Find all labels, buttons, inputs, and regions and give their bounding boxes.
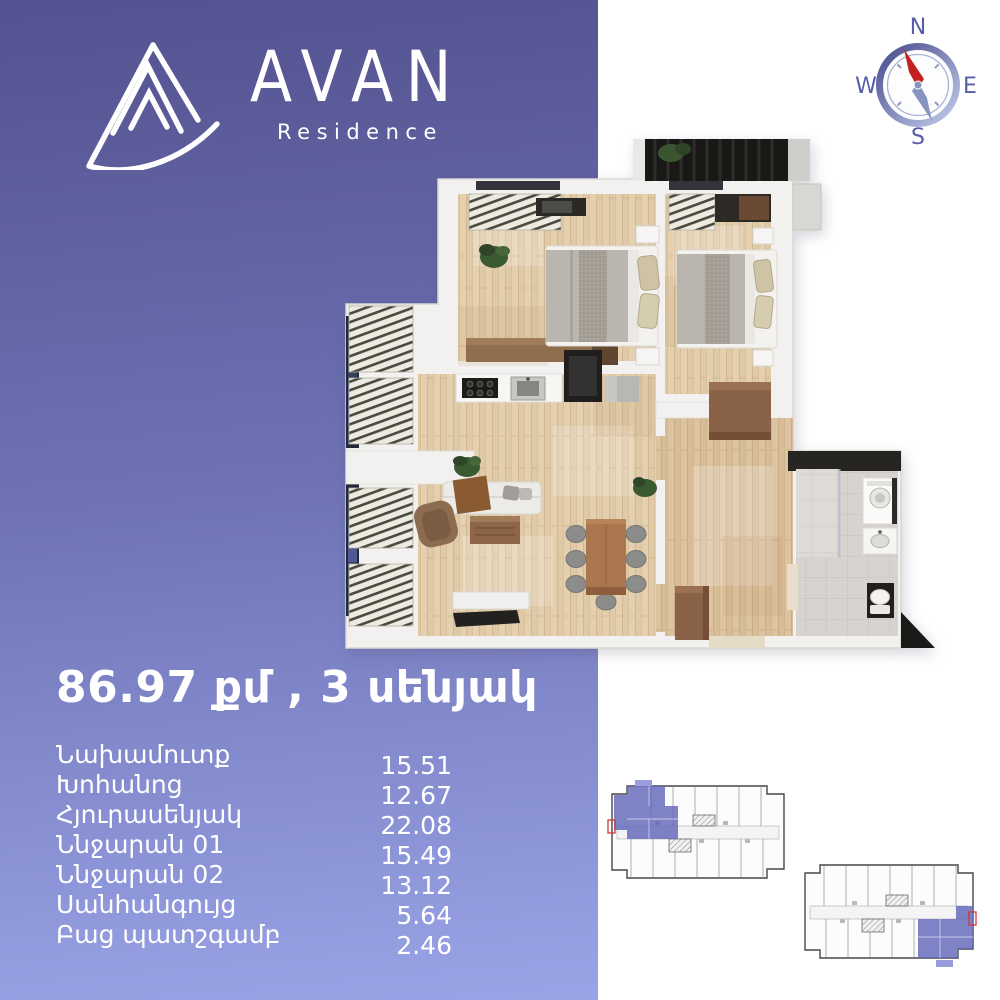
room-name-list: Նախամուտք Խոհանոց Հյուրասենյակ Ննջարան 0… <box>56 740 280 950</box>
corridor <box>810 906 968 919</box>
compass-north-label: N <box>910 15 926 40</box>
room-area-list: 15.51 12.67 22.08 15.49 13.12 5.64 2.46 <box>280 751 452 961</box>
corner-shadow <box>901 612 935 648</box>
stair-core <box>669 839 691 852</box>
room-area: 5.64 <box>280 901 452 931</box>
room-area: 12.67 <box>280 781 452 811</box>
room-name: Հյուրասենյակ <box>56 800 280 830</box>
washing-machine-icon <box>863 478 897 524</box>
poster-page: AVAN Residence N W E S <box>0 0 1000 1000</box>
room-name: Սանհանգույց <box>56 890 280 920</box>
tv-bench-icon <box>453 592 529 609</box>
room-name: Բաց պատշգամբ <box>56 920 280 950</box>
room-area: 2.46 <box>280 931 452 961</box>
compass-east-label: E <box>963 74 977 99</box>
curtain-icon <box>669 194 715 230</box>
building-plan-lower <box>800 857 978 973</box>
room-area: 22.08 <box>280 811 452 841</box>
avan-logo-mark-icon <box>86 40 226 170</box>
bedroom-2-window <box>669 181 723 190</box>
nightstand-icon <box>636 226 659 243</box>
coffee-table-icon <box>470 516 520 544</box>
dresser-bench-icon <box>709 382 771 440</box>
building-plan-upper <box>605 779 791 887</box>
room-name: Նախամուտք <box>56 740 280 770</box>
bed-icon <box>546 226 660 365</box>
nightstand-icon <box>753 228 773 244</box>
bedroom-1-window <box>476 181 560 190</box>
doorway-kitchen <box>656 436 665 480</box>
room-name: Ննջարան 02 <box>56 860 280 890</box>
brand-name: AVAN <box>250 40 464 114</box>
listing-title: 86.97 քմ , 3 սենյակ <box>56 662 538 713</box>
doorway-living <box>656 584 665 632</box>
window-blinds-icon <box>349 306 413 372</box>
apartment-3d-floorplan <box>343 136 937 662</box>
compass-west-label: W <box>855 74 877 99</box>
stair-core <box>886 895 908 906</box>
shower-area <box>796 469 838 557</box>
entrance-doorway <box>709 636 765 648</box>
stair-core <box>693 815 715 826</box>
console-icon <box>675 586 709 640</box>
bathroom-doorway <box>787 564 798 610</box>
toilet-icon <box>867 583 894 618</box>
room-area: 15.49 <box>280 841 452 871</box>
room-name: Խոհանոց <box>56 770 280 800</box>
stair-core <box>862 919 884 932</box>
room-area: 13.12 <box>280 871 452 901</box>
compass-icon: N W E S <box>852 12 984 146</box>
room-area: 15.51 <box>280 751 452 781</box>
room-name: Ննջարան 01 <box>56 830 280 860</box>
bathroom-sink-icon <box>863 528 897 554</box>
